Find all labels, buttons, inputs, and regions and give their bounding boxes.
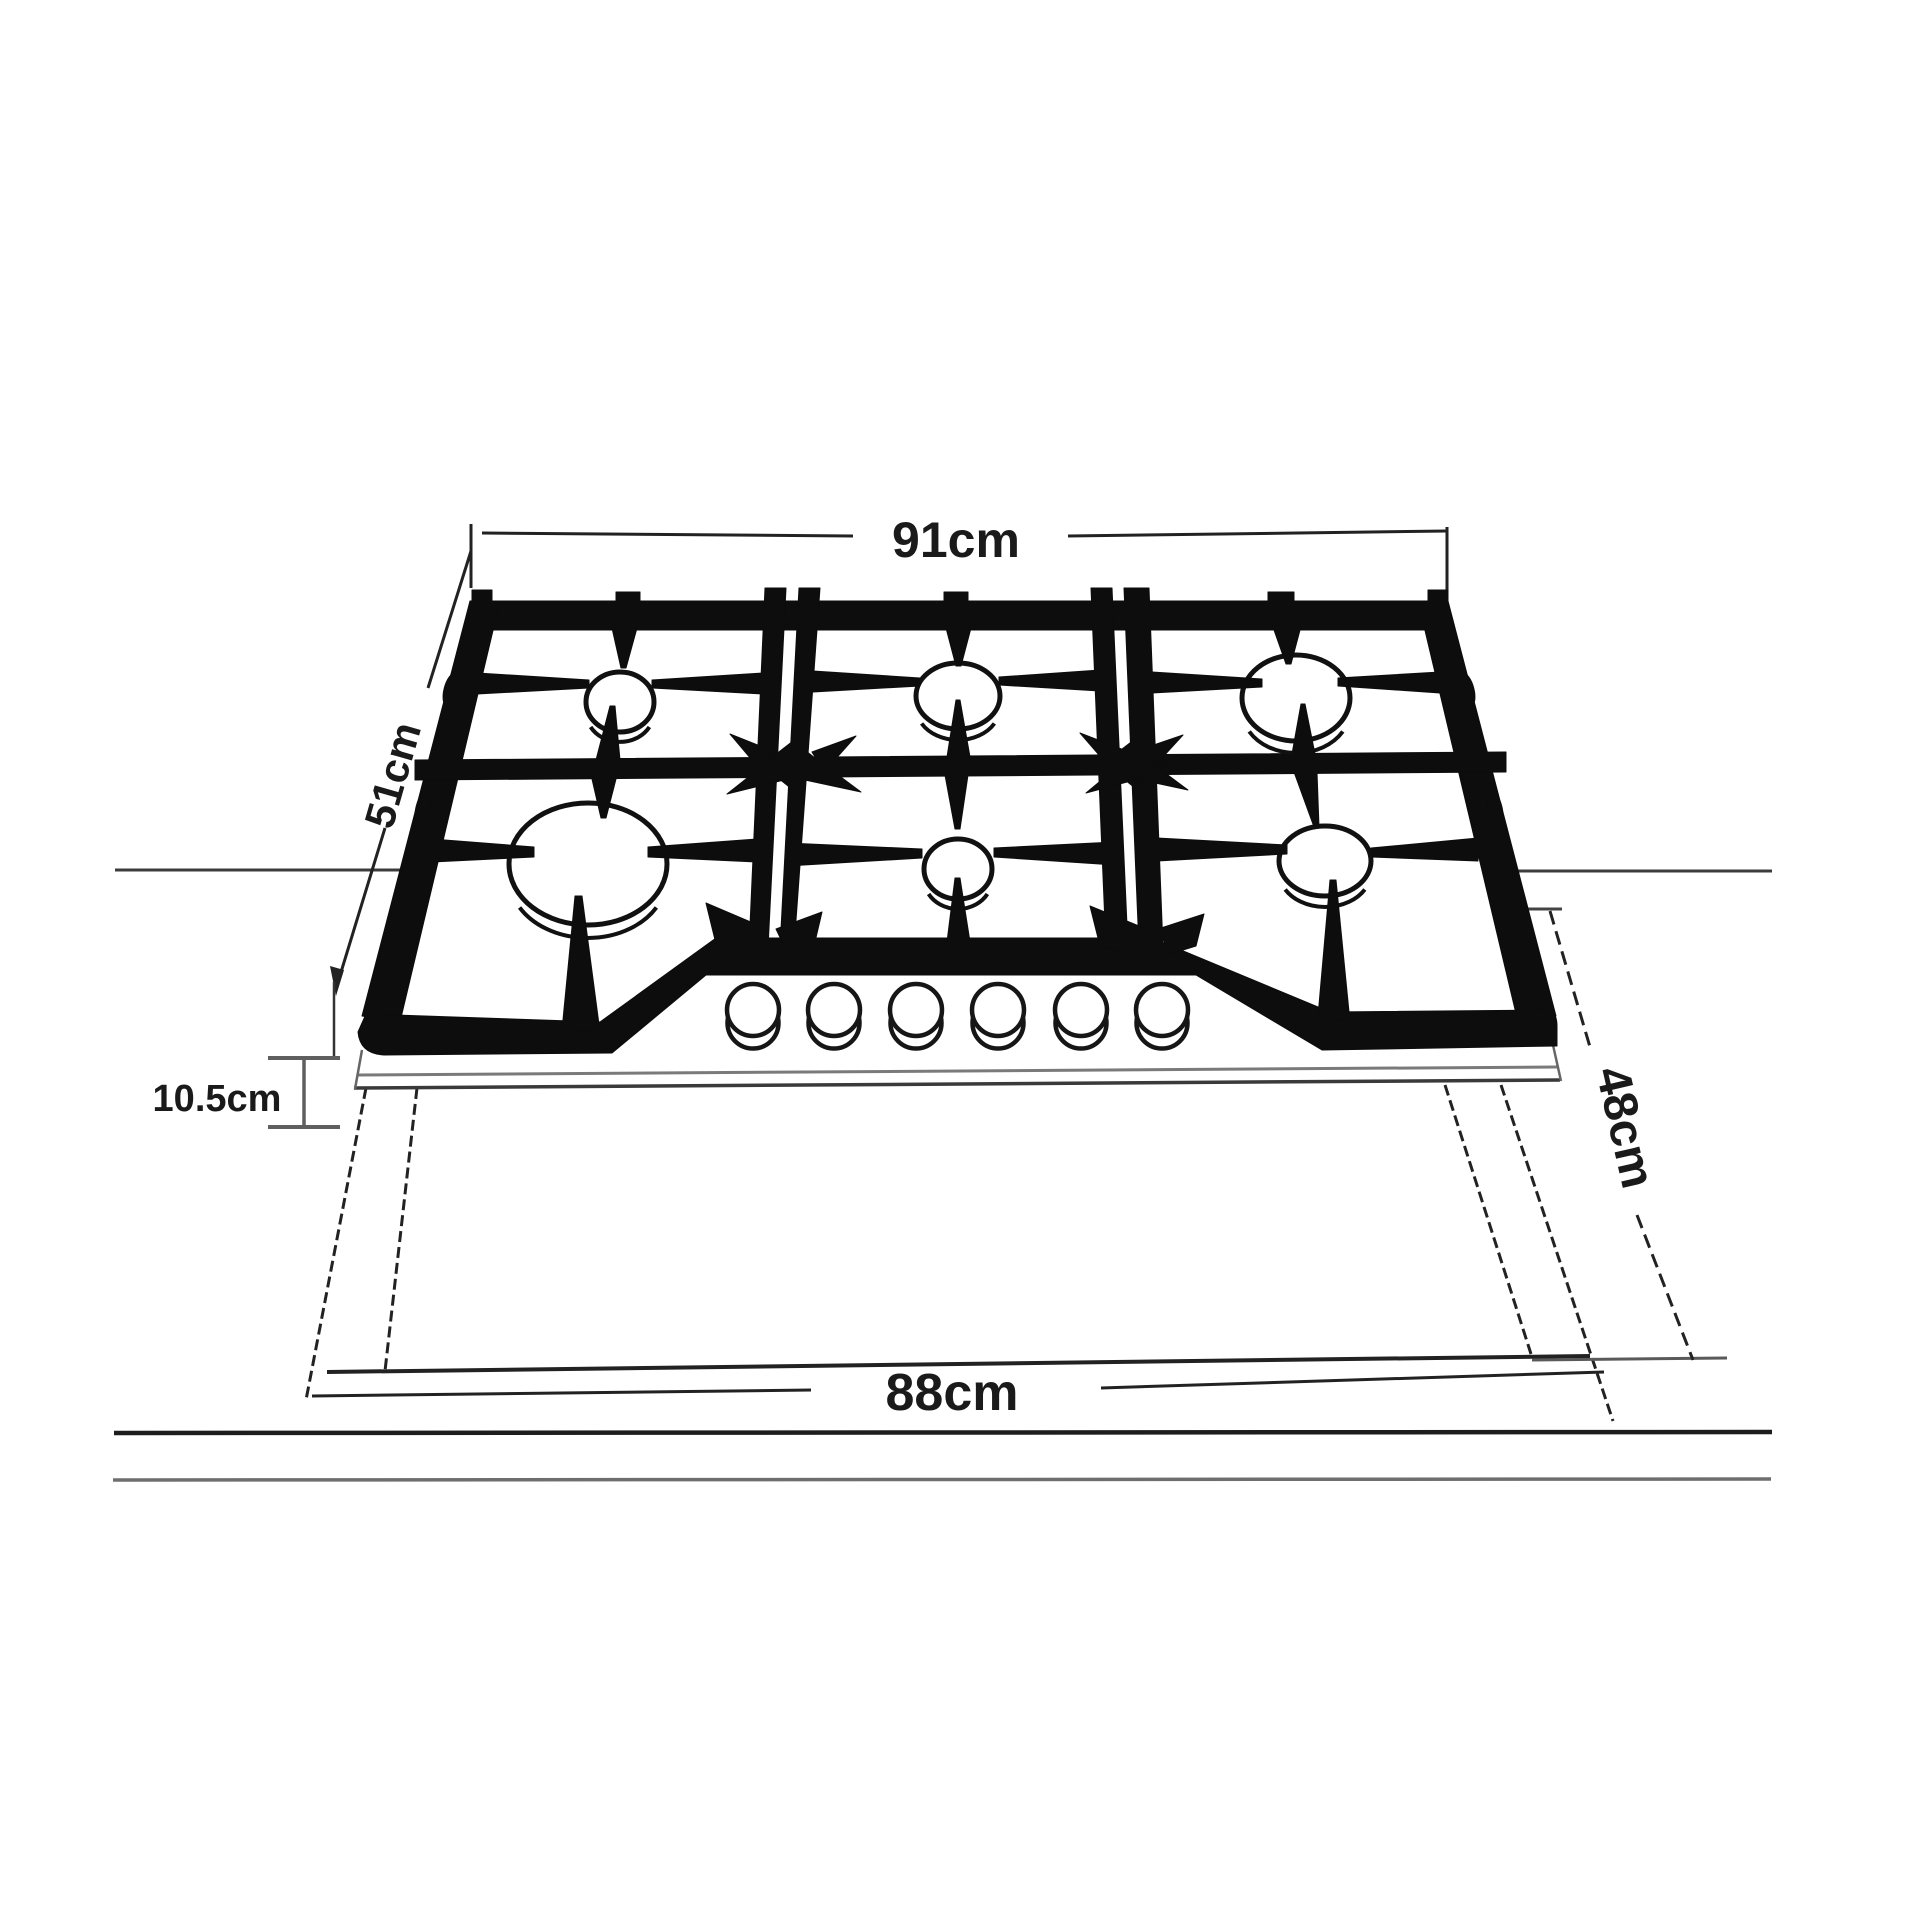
svg-text:91cm: 91cm — [892, 512, 1020, 568]
svg-text:88cm: 88cm — [886, 1364, 1019, 1422]
svg-text:10.5cm: 10.5cm — [153, 1078, 282, 1120]
